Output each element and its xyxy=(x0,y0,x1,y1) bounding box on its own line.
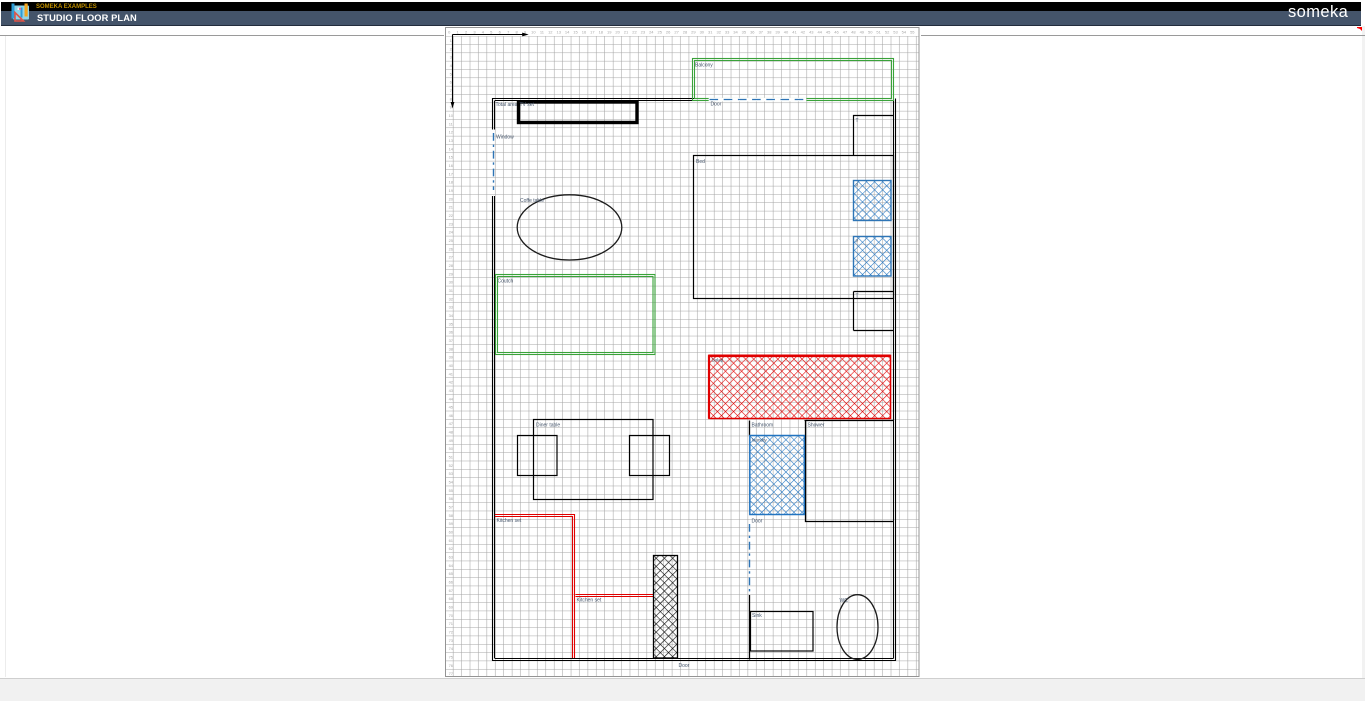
svg-text:28: 28 xyxy=(449,263,454,268)
svg-text:32: 32 xyxy=(716,29,721,34)
svg-text:38: 38 xyxy=(767,29,772,34)
svg-text:55: 55 xyxy=(910,29,915,34)
svg-text:54: 54 xyxy=(449,480,454,485)
svg-text:Window: Window xyxy=(496,135,514,141)
svg-text:55: 55 xyxy=(449,488,454,493)
svg-text:71: 71 xyxy=(449,621,454,626)
svg-text:18: 18 xyxy=(449,180,454,185)
svg-text:54: 54 xyxy=(902,29,907,34)
svg-text:46: 46 xyxy=(449,413,454,418)
svg-text:34: 34 xyxy=(449,313,454,318)
svg-text:17: 17 xyxy=(590,29,595,34)
svg-text:31: 31 xyxy=(449,288,454,293)
svg-text:Total area: Total area xyxy=(496,102,518,108)
svg-text:66: 66 xyxy=(449,580,454,585)
svg-text:49: 49 xyxy=(449,438,454,443)
svg-text:laundry: laundry xyxy=(752,438,768,443)
svg-text:26: 26 xyxy=(449,246,454,251)
svg-text:16: 16 xyxy=(449,163,454,168)
svg-text:17: 17 xyxy=(449,171,454,176)
svg-text:62: 62 xyxy=(449,546,454,551)
svg-text:43: 43 xyxy=(449,388,454,393)
svg-text:Coutch: Coutch xyxy=(498,279,514,285)
svg-text:44: 44 xyxy=(449,396,454,401)
svg-text:34: 34 xyxy=(733,29,738,34)
svg-text:39: 39 xyxy=(449,355,454,360)
svg-text:68: 68 xyxy=(449,596,454,601)
svg-text:56: 56 xyxy=(449,496,454,501)
svg-text:P: P xyxy=(856,239,859,244)
svg-text:WC: WC xyxy=(840,598,849,604)
svg-text:35: 35 xyxy=(742,29,747,34)
svg-text:TV set: TV set xyxy=(520,102,535,108)
svg-text:14: 14 xyxy=(449,146,454,151)
svg-text:Diner table: Diner table xyxy=(536,423,560,429)
svg-text:49: 49 xyxy=(860,29,865,34)
svg-text:Coffe table: Coffe table xyxy=(520,198,544,204)
svg-text:63: 63 xyxy=(449,555,454,560)
svg-text:60: 60 xyxy=(449,530,454,535)
svg-text:27: 27 xyxy=(449,255,454,260)
svg-text:75: 75 xyxy=(449,655,454,660)
svg-text:Kitchen set: Kitchen set xyxy=(577,598,602,604)
svg-text:53: 53 xyxy=(893,29,898,34)
svg-text:12: 12 xyxy=(449,130,454,135)
svg-text:20: 20 xyxy=(615,29,620,34)
svg-text:36: 36 xyxy=(449,330,454,335)
svg-text:41: 41 xyxy=(792,29,797,34)
svg-text:26: 26 xyxy=(666,29,671,34)
svg-text:16: 16 xyxy=(582,29,587,34)
svg-text:64: 64 xyxy=(449,563,454,568)
svg-text:20: 20 xyxy=(449,196,454,201)
svg-text:40: 40 xyxy=(784,29,789,34)
svg-text:P: P xyxy=(856,183,859,188)
svg-text:38: 38 xyxy=(449,346,454,351)
svg-text:45: 45 xyxy=(449,405,454,410)
svg-text:43: 43 xyxy=(809,29,814,34)
svg-text:15: 15 xyxy=(573,29,578,34)
svg-text:22: 22 xyxy=(632,29,637,34)
svg-text:52: 52 xyxy=(885,29,890,34)
svg-text:73: 73 xyxy=(449,638,454,643)
svg-text:23: 23 xyxy=(449,221,454,226)
svg-text:59: 59 xyxy=(449,521,454,526)
svg-text:30: 30 xyxy=(700,29,705,34)
svg-text:Kitchen set: Kitchen set xyxy=(497,518,522,524)
svg-text:31: 31 xyxy=(708,29,713,34)
svg-text:47: 47 xyxy=(449,421,454,426)
svg-text:42: 42 xyxy=(449,380,454,385)
svg-text:T: T xyxy=(856,294,859,300)
svg-text:51: 51 xyxy=(876,29,881,34)
svg-text:Door: Door xyxy=(679,663,690,669)
svg-text:42: 42 xyxy=(801,29,806,34)
svg-text:45: 45 xyxy=(826,29,831,34)
svg-text:41: 41 xyxy=(449,371,454,376)
svg-text:46: 46 xyxy=(834,29,839,34)
svg-text:14: 14 xyxy=(565,29,570,34)
svg-text:Balcony: Balcony xyxy=(695,63,713,69)
svg-text:12: 12 xyxy=(548,29,553,34)
svg-text:57: 57 xyxy=(449,505,454,510)
svg-text:10: 10 xyxy=(449,113,454,118)
svg-text:18: 18 xyxy=(599,29,604,34)
svg-text:58: 58 xyxy=(449,513,454,518)
svg-text:37: 37 xyxy=(449,338,454,343)
svg-text:32: 32 xyxy=(449,296,454,301)
svg-text:70: 70 xyxy=(449,613,454,618)
svg-text:Shower: Shower xyxy=(808,423,825,429)
svg-text:24: 24 xyxy=(449,230,454,235)
svg-text:52: 52 xyxy=(449,463,454,468)
svg-text:67: 67 xyxy=(449,588,454,593)
svg-text:Bathroom: Bathroom xyxy=(752,423,774,429)
svg-text:27: 27 xyxy=(674,29,679,34)
svg-text:15: 15 xyxy=(449,155,454,160)
svg-text:13: 13 xyxy=(556,29,561,34)
svg-text:72: 72 xyxy=(449,630,454,635)
svg-text:48: 48 xyxy=(851,29,856,34)
svg-text:61: 61 xyxy=(449,538,454,543)
svg-text:39: 39 xyxy=(775,29,780,34)
svg-text:69: 69 xyxy=(449,605,454,610)
svg-text:50: 50 xyxy=(449,446,454,451)
svg-text:25: 25 xyxy=(449,238,454,243)
svg-text:25: 25 xyxy=(657,29,662,34)
svg-text:22: 22 xyxy=(449,213,454,218)
svg-text:53: 53 xyxy=(449,471,454,476)
svg-text:35: 35 xyxy=(449,321,454,326)
svg-text:Door: Door xyxy=(752,519,763,525)
svg-text:28: 28 xyxy=(683,29,688,34)
svg-text:21: 21 xyxy=(624,29,629,34)
svg-text:29: 29 xyxy=(691,29,696,34)
svg-text:37: 37 xyxy=(759,29,764,34)
svg-text:13: 13 xyxy=(449,138,454,143)
svg-text:21: 21 xyxy=(449,205,454,210)
svg-text:76: 76 xyxy=(449,663,454,668)
svg-text:77: 77 xyxy=(449,671,454,676)
svg-text:Dolap: Dolap xyxy=(712,358,724,363)
svg-text:33: 33 xyxy=(725,29,730,34)
svg-text:Door: Door xyxy=(711,102,722,108)
svg-text:19: 19 xyxy=(607,29,612,34)
svg-text:Sink: Sink xyxy=(752,613,762,619)
svg-text:44: 44 xyxy=(817,29,822,34)
svg-text:24: 24 xyxy=(649,29,654,34)
svg-text:33: 33 xyxy=(449,305,454,310)
svg-text:50: 50 xyxy=(868,29,873,34)
svg-text:47: 47 xyxy=(843,29,848,34)
svg-text:29: 29 xyxy=(449,271,454,276)
svg-text:51: 51 xyxy=(449,455,454,460)
svg-text:36: 36 xyxy=(750,29,755,34)
svg-text:74: 74 xyxy=(449,646,454,651)
svg-text:40: 40 xyxy=(449,363,454,368)
svg-text:23: 23 xyxy=(641,29,646,34)
svg-text:Bed: Bed xyxy=(696,159,705,165)
svg-text:T: T xyxy=(856,118,859,124)
svg-text:19: 19 xyxy=(449,188,454,193)
svg-text:10: 10 xyxy=(531,29,536,34)
svg-text:30: 30 xyxy=(449,280,454,285)
svg-text:48: 48 xyxy=(449,430,454,435)
svg-text:65: 65 xyxy=(449,571,454,576)
